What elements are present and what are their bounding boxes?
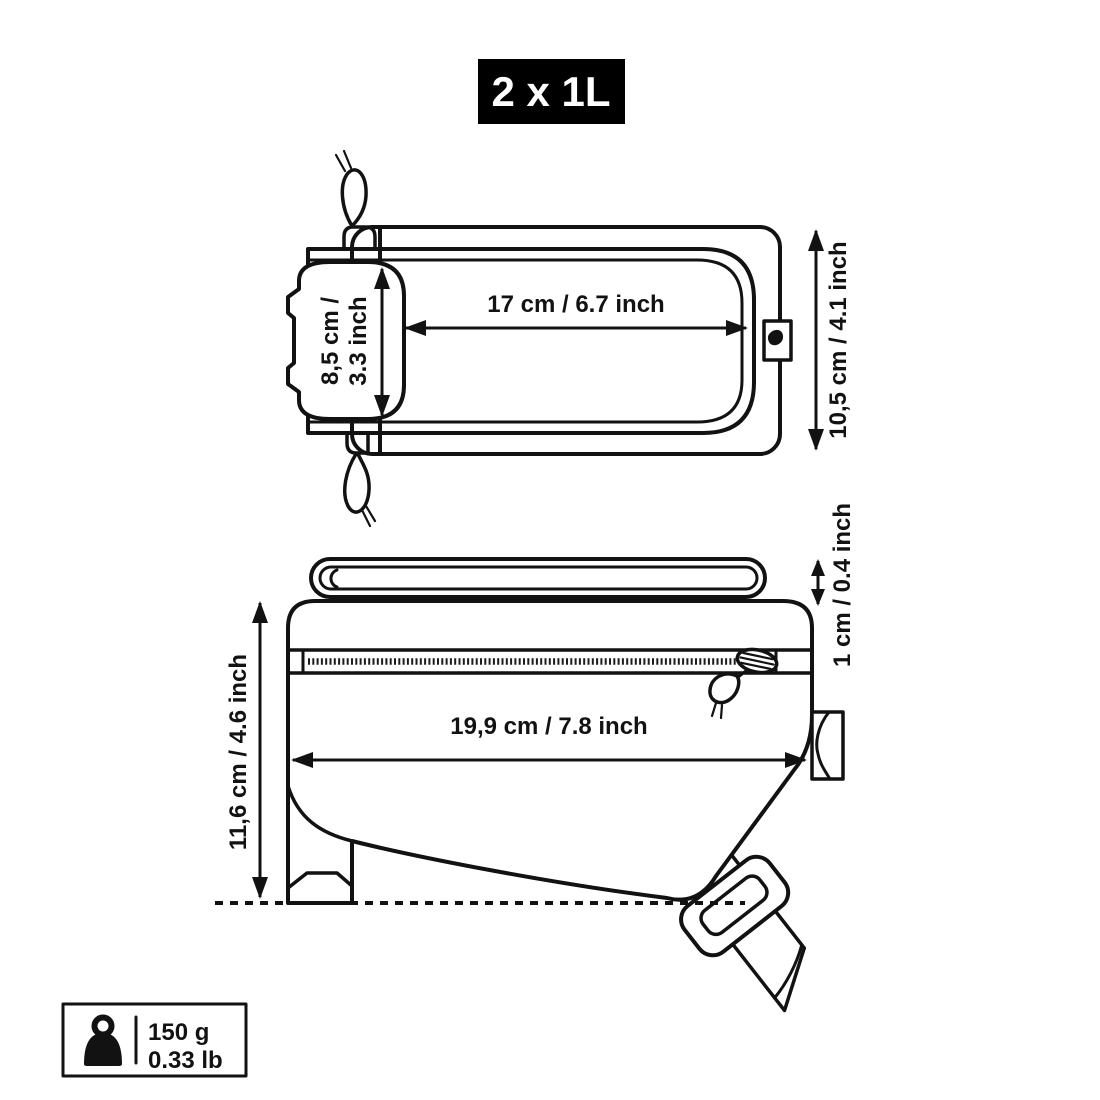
dimension-top-width: 17 cm / 6.7 inch: [404, 291, 748, 336]
diagram-canvas: 2 x 1L 8,5 cm /: [0, 0, 1100, 1100]
dimension-label-flap-height-line1: 8,5 cm /: [317, 297, 344, 385]
arrowhead-down: [808, 429, 824, 451]
side-view-right-tab: [812, 712, 843, 779]
top-strap-bar: [311, 559, 765, 597]
dimension-label-strap-thickness: 1 cm / 0.4 inch: [829, 503, 856, 667]
drawcord-string-top: [336, 151, 351, 171]
drawcord-toggle-top: [342, 170, 366, 226]
volume-badge-label: 2 x 1L: [491, 68, 610, 115]
arrowhead-up: [252, 601, 268, 623]
arrowhead-right: [726, 320, 748, 336]
weight-pounds: 0.33 lb: [148, 1047, 223, 1074]
arrowhead-down: [252, 877, 268, 899]
weight-grams: 150 g: [148, 1019, 209, 1046]
dimension-label-side-height: 11,6 cm / 4.6 inch: [225, 654, 252, 850]
drawcord-toggle-bottom: [345, 454, 369, 512]
arrowhead-up: [811, 559, 825, 576]
dimension-side-height: 11,6 cm / 4.6 inch: [225, 601, 268, 899]
dimension-label-side-length: 19,9 cm / 7.8 inch: [450, 713, 647, 740]
arrowhead-left: [404, 320, 426, 336]
volume-badge: 2 x 1L: [478, 59, 625, 124]
arrowhead-down: [811, 589, 825, 606]
weight-spec-box: 150 g 0.33 lb: [63, 1004, 246, 1076]
dimension-label-top-width: 17 cm / 6.7 inch: [487, 291, 664, 318]
weight-icon-body: [84, 1033, 122, 1066]
side-view: 1 cm / 0.4 inch 19,9 cm / 7.8 inch 11,6 …: [215, 503, 856, 1028]
dimension-top-height: 10,5 cm / 4.1 inch: [808, 229, 852, 451]
arrowhead-up: [808, 229, 824, 251]
dimension-strap-thickness: 1 cm / 0.4 inch: [811, 503, 856, 667]
top-strap-outer: [311, 559, 765, 597]
weight-icon: [84, 1018, 122, 1067]
dimension-label-top-height: 10,5 cm / 4.1 inch: [825, 241, 852, 438]
product-dimension-diagram: 2 x 1L 8,5 cm /: [0, 0, 1100, 1100]
weight-icon-handle: [95, 1018, 112, 1035]
top-view: 8,5 cm / 3.3 inch 17 cm / 6.7 inch 10,5 …: [288, 151, 852, 526]
dimension-label-flap-height-line2: 3.3 inch: [345, 296, 372, 385]
